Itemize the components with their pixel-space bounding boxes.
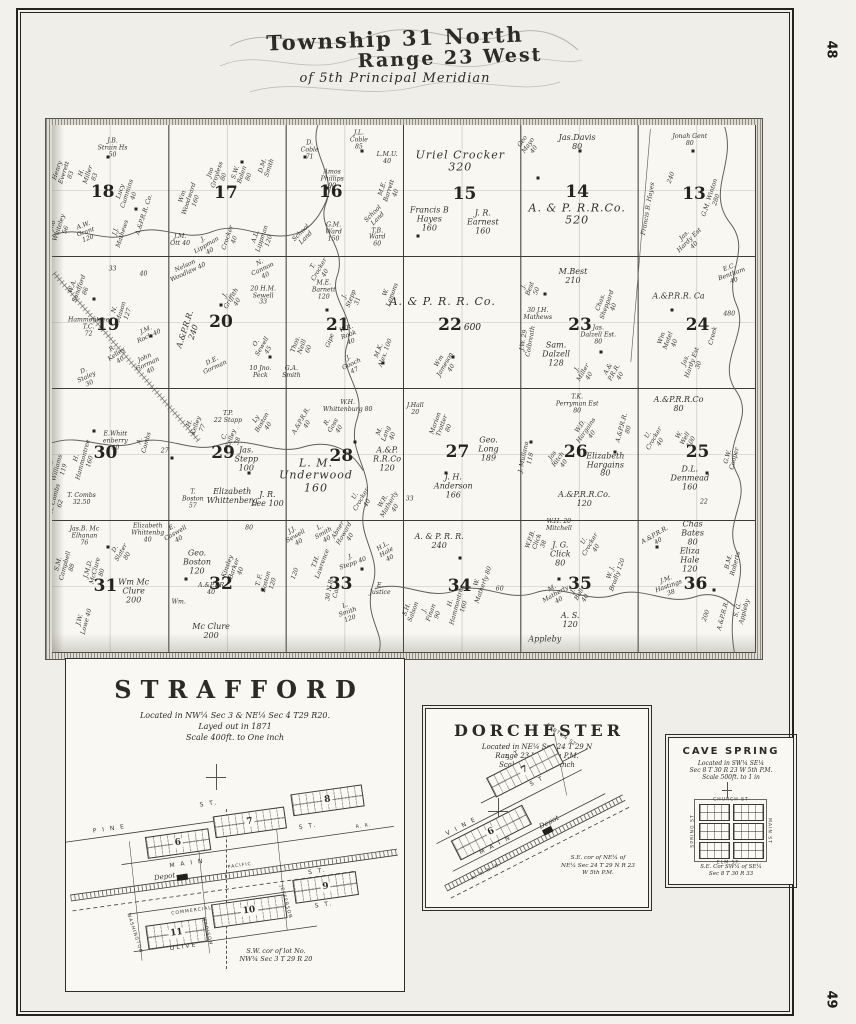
parcel-label: 80: [245, 525, 253, 532]
strafford-inset: STRAFFORD Located in NW¼ Sec 3 & NE¼ Sec…: [65, 658, 405, 992]
parcel-label: D. Coble 71: [301, 141, 319, 162]
street-label: MAIN ST: [767, 818, 772, 844]
atlas-page: 48 49 Township 31 North Range 23 West of…: [0, 0, 856, 1024]
section-number: 24: [686, 315, 710, 335]
section-number: 29: [211, 443, 235, 463]
section-number: 19: [96, 315, 120, 335]
town-block: [733, 842, 764, 859]
parcel-label: Jas.Davis 80: [559, 135, 596, 153]
block-number: 7: [518, 764, 531, 777]
section-number: 13: [682, 184, 706, 204]
section-number: 27: [446, 442, 470, 462]
parcel-label: A.&P. R.R.Co 120: [373, 447, 401, 474]
parcel-label: Elizabeth Whittenbg 40: [131, 524, 164, 545]
parcel-label: Francis B Hayes 160: [410, 207, 449, 234]
house-marker: [705, 472, 708, 475]
house-marker: [579, 150, 582, 153]
house-marker: [381, 361, 384, 364]
township-map: Henry Everett 83H. Miller 83J.B. Strain …: [45, 118, 763, 660]
house-marker: [93, 430, 96, 433]
parcel-label: M.E. Barnett 120: [312, 281, 336, 302]
parcel-label: Jonah Gent 80: [672, 134, 707, 148]
section-number: 28: [330, 446, 354, 466]
parcel-label: A.&P.R.R.Co. 120: [558, 491, 610, 509]
house-marker: [417, 234, 420, 237]
parcel-label: 60: [496, 586, 504, 593]
cave-spring-compass-icon: [719, 782, 735, 798]
parcel-label: M.Best 210: [559, 268, 588, 286]
parcel-label: Elizabeth Whittenberg: [207, 488, 258, 506]
parcel-label: A. & P. R.R.Co. 520: [529, 202, 626, 227]
parcel-label: J. G. Click 80: [550, 542, 571, 569]
section-number: 30: [94, 443, 118, 463]
dorchester-corner-note: S.E. cor of NE¼ of NE¼ Sec 24 T 29 N R 2…: [554, 855, 642, 878]
dorchester-inset: DORCHESTER Located in NE¼ Sec 24 T 29 N …: [425, 708, 649, 908]
parcel-label: Geo. Long 189: [478, 436, 498, 463]
house-marker: [536, 176, 539, 179]
house-marker: [614, 451, 617, 454]
house-marker: [600, 351, 603, 354]
parcel-label: A. & P. R. R. 240: [415, 533, 464, 551]
section-number: 32: [209, 574, 233, 594]
house-marker: [452, 356, 455, 359]
parcel-label: J.Hall 20: [407, 403, 424, 417]
cave-spring-caption-2: Sec 8 T 30 R 23 W 5th P.M.: [669, 767, 793, 774]
parcel-label: J.B. Strain Hs 50: [98, 138, 128, 159]
parcel-label: 20 H.M. Sewell 33: [250, 286, 276, 307]
section-number: 34: [448, 576, 472, 596]
parcel-label: 10 Jno. Peck: [249, 366, 271, 380]
block-number: 7: [244, 817, 255, 827]
town-block: [733, 823, 764, 840]
parcel-label: 40: [140, 272, 148, 279]
parcel-label: J.L. Coble 85: [350, 130, 368, 151]
parcel-label: T.P. 22 Stapp: [214, 411, 242, 425]
house-marker: [712, 588, 715, 591]
house-marker: [184, 578, 187, 581]
section-number: 15: [453, 184, 477, 204]
strafford-corner-note: S.W. cor of lot No. NW¼ Sec 3 T 29 R 20: [186, 947, 366, 964]
section-number: 35: [568, 574, 592, 594]
section-number: 25: [686, 442, 710, 462]
parcel-label: D.L. Denmead 160: [671, 465, 710, 492]
parcel-label: A. & P. R. R. Co.: [390, 296, 496, 308]
parcel-label: 22: [700, 499, 708, 506]
block-number: 6: [485, 826, 498, 839]
parcel-label: T.K. Perryman Est 80: [556, 394, 599, 415]
parcel-label: G.A. Smith: [282, 366, 301, 380]
house-marker: [135, 208, 138, 211]
parcel-label: A.&P.R.R.Co 80: [654, 396, 704, 414]
parcel-label: Jas.B. Mc Elhanan 76: [70, 526, 100, 547]
parcel-label: Wm Mc Clure 200: [118, 579, 149, 606]
strafford-compass-icon: [203, 764, 229, 790]
block-number: 10: [240, 906, 258, 917]
parcel-label: 27: [161, 449, 169, 456]
street-label: SPRING ST: [691, 814, 696, 847]
parcel-label: T. Combs 32.50: [67, 493, 96, 507]
section-number: 18: [91, 182, 115, 202]
section-number: 33: [329, 574, 353, 594]
cave-spring-corner-note: S.E. Cor SW¼ of SE¼ Sec 8 T 30 R 33: [681, 864, 781, 878]
town-block: [699, 804, 730, 821]
cave-spring-caption-1: Located in SW¼ SE¼: [669, 760, 793, 767]
section-number: 26: [564, 442, 588, 462]
parcel-label: W.H. Whittenburg 80: [323, 401, 373, 415]
parcel-label: W.H. 20 Mitchell: [546, 519, 572, 533]
cave-spring-inset: CAVE SPRING Located in SW¼ SE¼ Sec 8 T 3…: [668, 737, 794, 885]
block-number: 9: [320, 882, 331, 892]
cave-spring-plat: CHURCH STELM ST.MAIN STSPRING ST: [699, 804, 762, 857]
parcel-label: J. H. Anderson 166: [434, 473, 473, 500]
town-block: [699, 842, 730, 859]
section-number: 31: [94, 576, 118, 596]
section-number: 20: [209, 312, 233, 332]
house-marker: [557, 578, 560, 581]
section-number: 16: [319, 182, 343, 202]
parcel-label: A. S. 120: [561, 612, 580, 630]
house-marker: [360, 567, 363, 570]
house-marker: [691, 150, 694, 153]
strafford-caption-2: Layed out in 1871: [66, 722, 404, 731]
house-marker: [304, 155, 307, 158]
parcel-label: 33: [406, 496, 414, 503]
house-marker: [529, 440, 532, 443]
cave-spring-caption-3: Scale 500ft. to 1 in: [669, 774, 793, 781]
block-number: 6: [172, 838, 183, 848]
strafford-caption-3: Scale 400ft. to One inch: [66, 733, 404, 742]
house-marker: [656, 546, 659, 549]
house-marker: [325, 308, 328, 311]
house-marker: [353, 440, 356, 443]
parcel-label: J.M. Ott 40: [170, 234, 190, 248]
house-marker: [93, 298, 96, 301]
block-number: 11: [168, 928, 186, 939]
parcel-label: E. Justice: [369, 583, 390, 597]
strafford-title: STRAFFORD: [66, 675, 404, 704]
parcel-label: Jas. Stepp 100: [234, 447, 258, 474]
section-number: 14: [565, 182, 589, 202]
parcel-label: 33: [109, 267, 117, 274]
parcel-label: 480: [723, 312, 735, 319]
town-block: [699, 823, 730, 840]
house-marker: [170, 456, 173, 459]
house-marker: [543, 292, 546, 295]
parcel-label: Geo. Boston 120: [183, 550, 211, 577]
parcel-label: T. Boston 57: [182, 489, 204, 510]
parcel-label: Appleby: [528, 635, 561, 644]
page-number-bottom: 49: [823, 990, 838, 1008]
house-marker: [241, 160, 244, 163]
road-line: [631, 129, 651, 362]
section-number: 23: [568, 315, 592, 335]
township-grid: Henry Everett 83H. Miller 83J.B. Strain …: [52, 125, 756, 653]
house-marker: [107, 155, 110, 158]
house-marker: [360, 150, 363, 153]
strafford-caption-1: Located in NW¼ Sec 3 & NE¼ Sec 4 T29 R20…: [66, 711, 404, 720]
house-marker: [219, 303, 222, 306]
house-marker: [248, 472, 251, 475]
page-number-top: 48: [823, 40, 838, 58]
section-number: 17: [214, 183, 238, 203]
map-title: Township 31 North Range 23 West of 5th P…: [230, 26, 560, 86]
house-marker: [670, 308, 673, 311]
house-marker: [459, 556, 462, 559]
block-number: 8: [322, 795, 333, 805]
section-acreage: 600: [464, 323, 481, 333]
cave-spring-title: CAVE SPRING: [669, 746, 793, 757]
house-marker: [325, 187, 328, 190]
house-marker: [149, 335, 152, 338]
street-label: CHURCH ST: [713, 798, 749, 803]
parcel-label: A.&P.R.R. Ca: [652, 292, 704, 301]
town-block: [733, 804, 764, 821]
strafford-depot-building: [176, 874, 188, 881]
parcel-label: L.M.U. 40: [377, 152, 398, 166]
parcel-label: Uriel Crocker 320: [416, 150, 505, 175]
parcel-label: Mc Clure 200: [192, 623, 230, 641]
parcel-label: Chas Bates 80: [681, 521, 704, 548]
section-number: 36: [684, 574, 708, 594]
house-marker: [262, 588, 265, 591]
parcel-label: G.M. Ward 150: [325, 223, 341, 244]
parcel-label: Elizabeth Hargains 80: [586, 452, 624, 479]
parcel-label: Sam. Dalzell 128: [542, 341, 570, 368]
parcel-label: Eliza Hale 120: [680, 547, 700, 574]
house-marker: [107, 546, 110, 549]
parcel-label: T.B. Ward 60: [369, 228, 385, 249]
section-number: 21: [326, 315, 350, 335]
parcel-label: Wm.: [172, 599, 186, 606]
parcel-label: J. R. Earnest 160: [467, 209, 499, 236]
house-marker: [445, 472, 448, 475]
parcel-label: 30 J.H. Mathews: [523, 308, 552, 322]
dorchester-title: DORCHESTER: [426, 721, 648, 740]
section-number: 22600: [438, 315, 481, 335]
house-marker: [269, 356, 272, 359]
